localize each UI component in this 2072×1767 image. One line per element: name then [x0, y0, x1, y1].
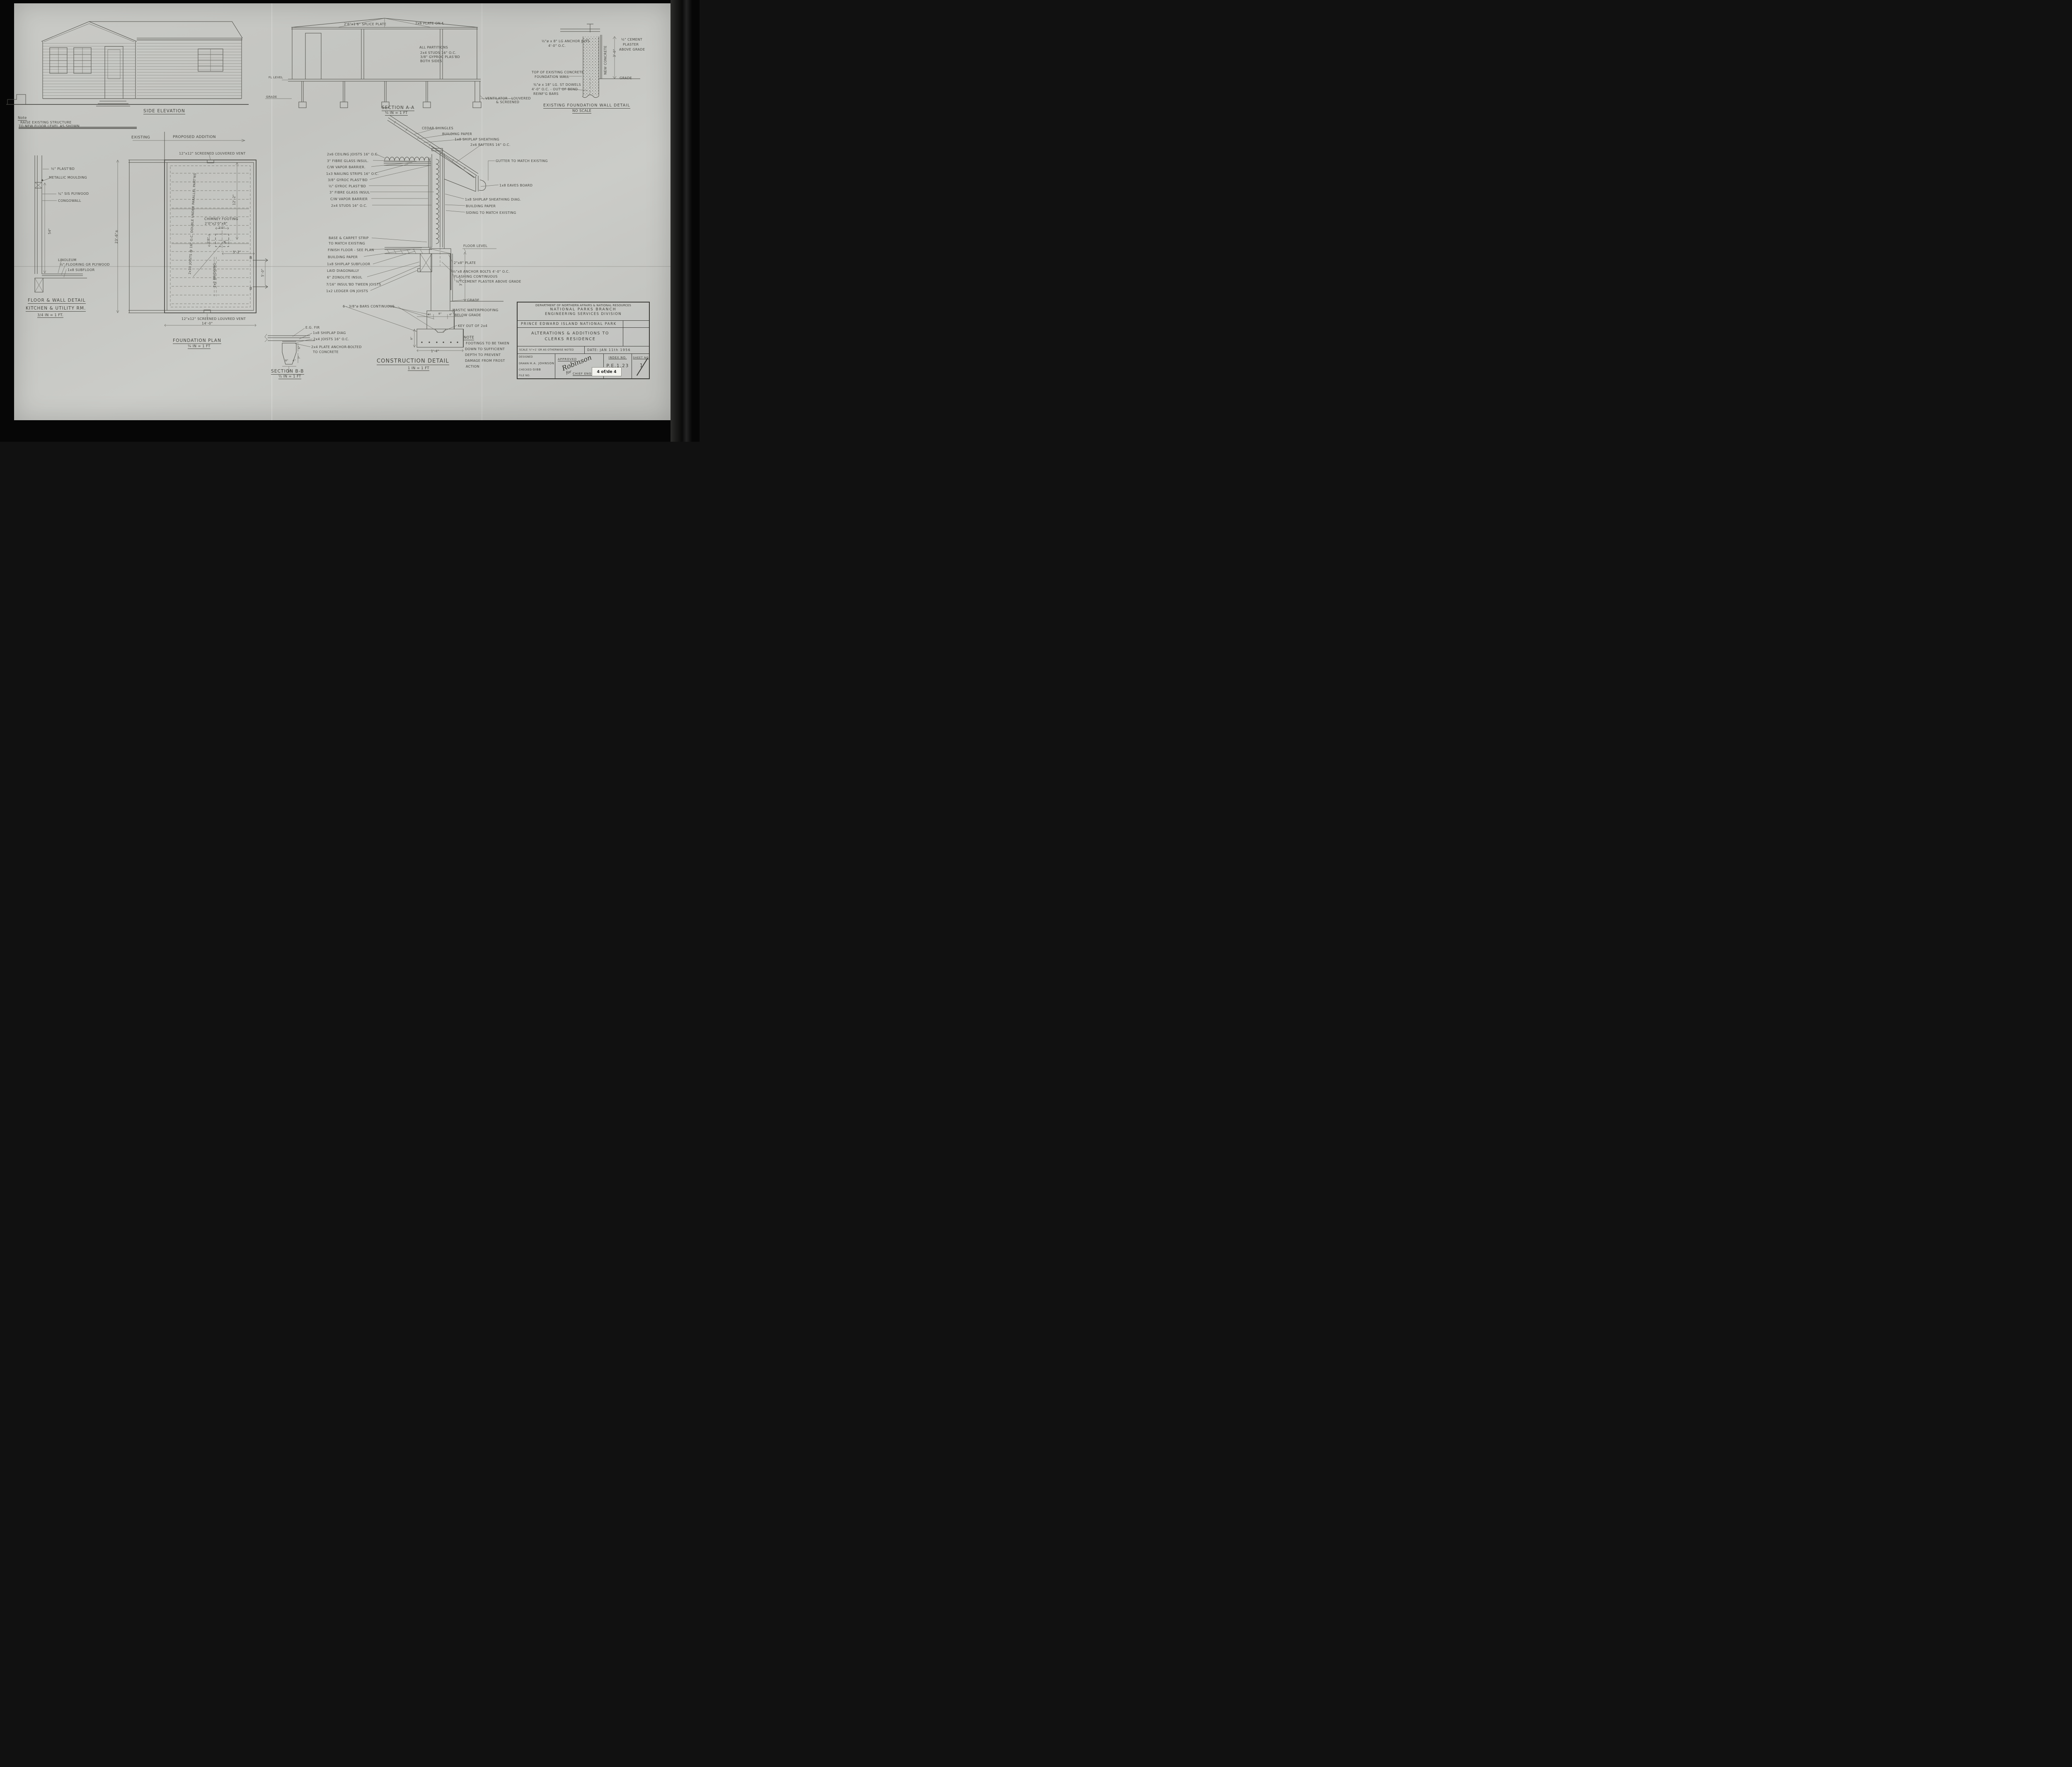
- title-block-department-row: DEPARTMENT OF NORTHERN AFFAIRS & NATIONA…: [518, 303, 649, 321]
- title-block-scale-date-row: SCALE ¼"=1' OR AS OTHERWISE NOTED DATE: …: [518, 346, 649, 354]
- date-label: DATE:: [587, 348, 598, 352]
- department-line-1: DEPARTMENT OF NORTHERN AFFAIRS & NATIONA…: [518, 304, 649, 307]
- foundation-plan-drawing: [116, 132, 268, 327]
- title-block-subject-row: ALTERATIONS & ADDITIONS TO CLERKS RESIDE…: [518, 328, 649, 346]
- checked-label: CHECKED: [519, 368, 532, 371]
- scale-cell: SCALE ¼"=1' OR AS OTHERWISE NOTED: [518, 346, 584, 353]
- construction-detail-drawing: [344, 115, 503, 352]
- date-value: JAN 11th 1956: [600, 348, 631, 352]
- sheet-cell: SHEET NO. 1: [632, 354, 651, 379]
- side-elevation-drawing: [6, 22, 249, 128]
- drawn-value: H.A. JOHNSON: [530, 362, 554, 365]
- title-block: DEPARTMENT OF NORTHERN AFFAIRS & NATIONA…: [517, 302, 650, 379]
- index-label: INDEX NO.: [604, 356, 632, 359]
- title-block-project-row: PRINCE EDWARD ISLAND NATIONAL PARK: [518, 321, 649, 328]
- section-bb-drawing: [265, 328, 315, 373]
- archive-page-sticker: 4 of/de 4: [592, 367, 622, 376]
- designed-label: DESIGNED: [519, 356, 555, 358]
- subject-line-2: CLERKS RESIDENCE: [518, 337, 623, 341]
- subject-cell: ALTERATIONS & ADDITIONS TO CLERKS RESIDE…: [518, 328, 623, 346]
- date-cell: DATE: JAN 11th 1956: [584, 346, 651, 353]
- blueprint-scan: SIDE ELEVATIONNoteRAISE EXISTING STRUCTU…: [0, 0, 700, 442]
- signature-for: for: [566, 370, 572, 375]
- department-line-3: ENGINEERING SERVICES DIVISION: [518, 312, 649, 316]
- floor-wall-detail-drawing: [35, 155, 87, 292]
- subject-row-right-cell: [623, 328, 651, 346]
- names-cell: DESIGNED DRAWN H.A. JOHNSON CHECKED GIBB…: [518, 354, 555, 379]
- approved-signature: Robinson: [561, 353, 593, 373]
- department-line-2: NATIONAL PARKS BRANCH: [518, 307, 649, 312]
- checked-line: CHECKED GIBB: [519, 368, 555, 371]
- section-aa-drawing: [265, 18, 513, 108]
- subject-line-1: ALTERATIONS & ADDITIONS TO: [518, 331, 623, 336]
- foundation-wall-detail-drawing: [560, 24, 640, 98]
- date-line: DATE: JAN 11th 1956: [587, 348, 651, 352]
- title-block-signature-row: DESIGNED DRAWN H.A. JOHNSON CHECKED GIBB…: [518, 354, 649, 379]
- checked-value: GIBB: [533, 368, 541, 371]
- file-label: FILE NO.: [519, 374, 555, 377]
- scale-text: SCALE ¼"=1' OR AS OTHERWISE NOTED: [519, 349, 584, 351]
- project-row-right-cell: [623, 321, 651, 327]
- drawn-label: DRAWN: [519, 362, 529, 365]
- drawn-line: DRAWN H.A. JOHNSON: [519, 362, 555, 365]
